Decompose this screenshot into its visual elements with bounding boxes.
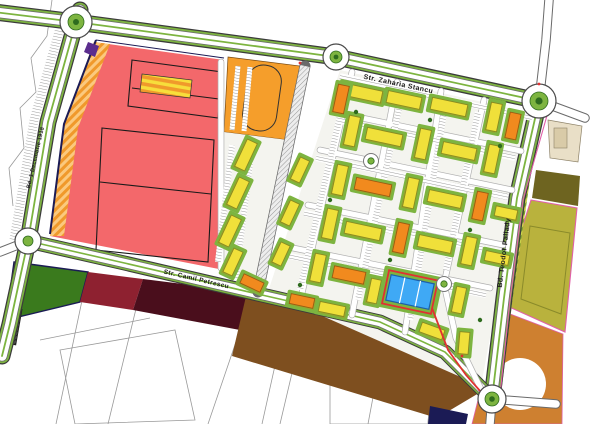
building-footprint [454,327,474,358]
roundabout-northwest [60,6,92,38]
zone-dark-olive [532,170,580,206]
mini-roundabout-center [364,154,379,169]
roundabout-west [15,228,41,254]
roundabout-north [323,44,349,70]
zone-commercial-red [50,42,224,270]
zone-crimson [80,272,143,310]
existing-building [554,128,567,148]
mini-roundabout-school [437,277,452,292]
master-plan-map: Str. Zaharia Stancu Str. Camil Petrescu … [0,0,600,424]
roundabout-southeast [478,385,506,413]
roundabout-northeast [522,84,556,118]
